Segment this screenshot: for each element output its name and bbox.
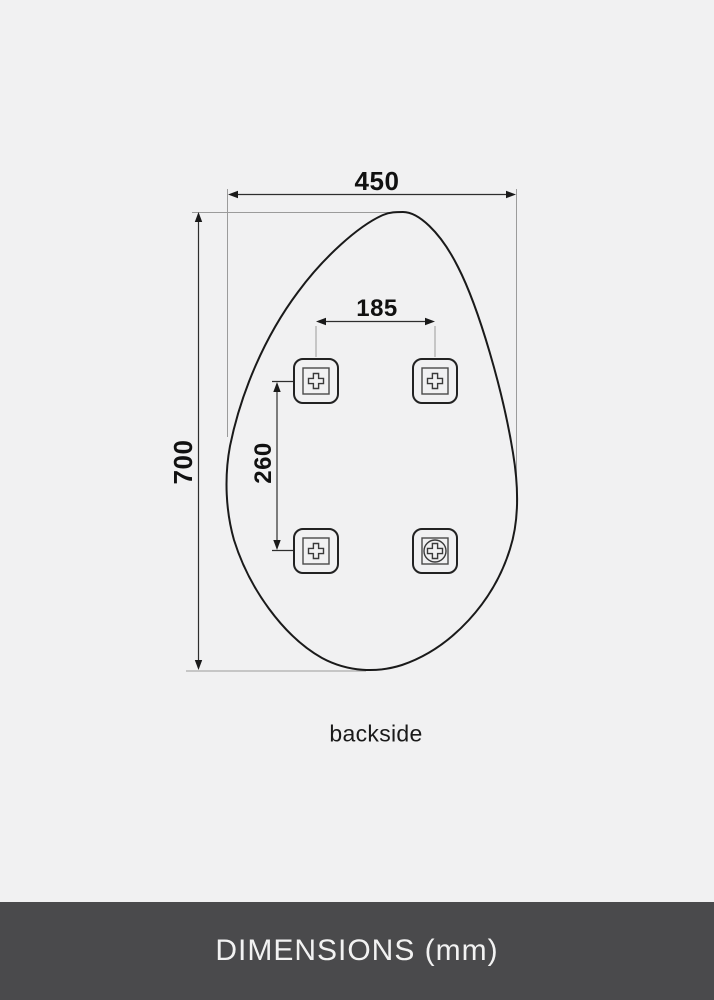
bracket-top-left [294, 359, 338, 403]
arrow-up-icon [195, 212, 202, 222]
drawing-area: 450 185 700 260 backside [0, 0, 714, 902]
footer-title: DIMENSIONS (mm) [215, 936, 498, 966]
bracket-top-right [413, 359, 457, 403]
footer-bar: DIMENSIONS (mm) [0, 902, 714, 1000]
arrow-left-icon [228, 191, 238, 198]
bracket-bottom-left [294, 529, 338, 573]
width-dimension-label: 450 [355, 168, 400, 194]
arrow-right-icon [506, 191, 516, 198]
arrow-down-icon [273, 540, 280, 550]
arrow-left-icon [316, 318, 326, 325]
arrow-down-icon [195, 660, 202, 670]
page: 450 185 700 260 backside DIMENSIONS (mm) [0, 0, 714, 1000]
extension-lines [186, 189, 517, 671]
bracket-spacing-vertical-label: 260 [252, 442, 276, 484]
mirror-dimension-drawing [0, 0, 714, 902]
mirror-outline [227, 212, 518, 670]
arrow-right-icon [425, 318, 435, 325]
bracket-bottom-right-screw [413, 529, 457, 573]
height-dimension-label: 700 [170, 440, 196, 485]
bracket-spacing-horizontal-label: 185 [356, 297, 398, 321]
backside-caption: backside [329, 723, 422, 746]
arrow-up-icon [273, 382, 280, 392]
